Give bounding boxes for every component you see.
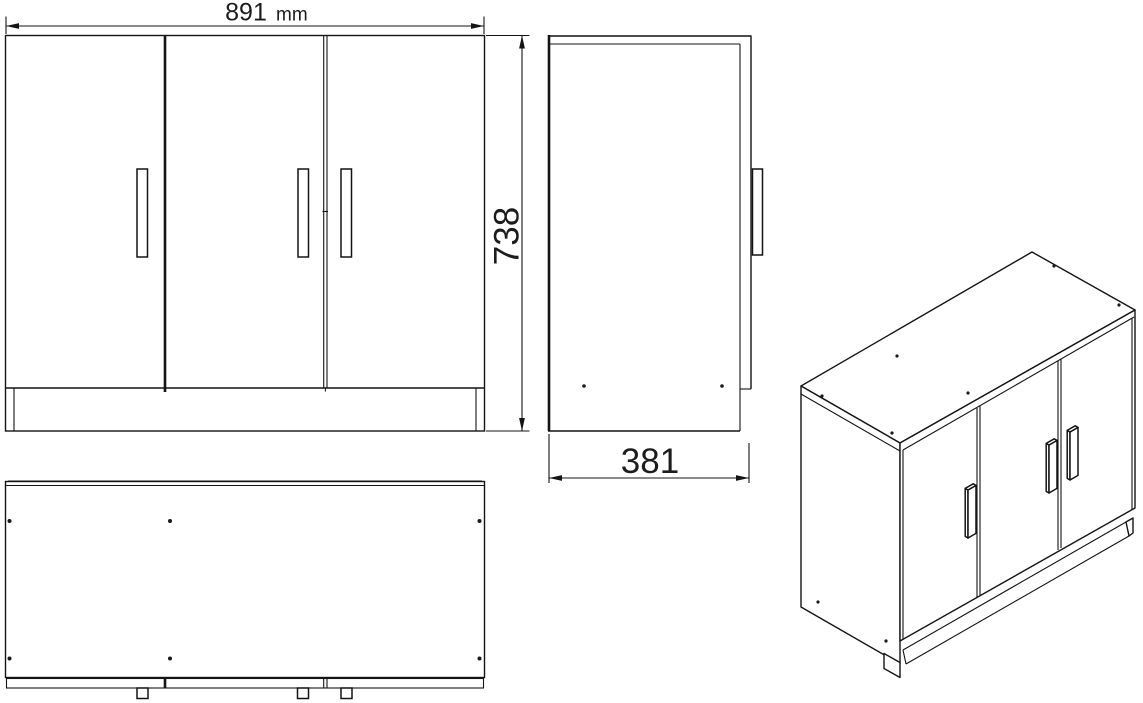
iso-top-screw-dot-2 [895, 354, 898, 357]
side-view [548, 35, 763, 431]
front-cabinet-outline [6, 36, 485, 432]
dim-width-arrow-right [471, 23, 484, 29]
top-door3-handle [341, 688, 352, 699]
dimension-depth: 381 [549, 434, 749, 483]
top-screw-dot-1 [8, 519, 12, 523]
iso-side-screw-dot-2 [884, 639, 887, 642]
iso-top-screw-dot-5 [966, 391, 969, 394]
front-door2-handle [298, 169, 309, 257]
iso-door2-handle [1046, 439, 1057, 493]
iso-plinth-right-cap [1126, 518, 1133, 536]
iso-top-screw-dot-3 [1052, 264, 1055, 267]
top-door2-handle [298, 688, 309, 699]
dim-width-unit: mm [276, 5, 308, 26]
dim-width-label: 891 [225, 0, 267, 27]
top-screw-dot-6 [478, 657, 482, 661]
dim-depth-arrow-right [736, 475, 749, 481]
isometric-view [801, 252, 1135, 678]
top-screw-dot-4 [8, 657, 12, 661]
top-screw-dot-5 [168, 657, 172, 661]
front-view [6, 36, 485, 432]
dim-width-arrow-left [6, 23, 19, 29]
top-body-outline [6, 482, 485, 678]
iso-door1-handle-front [968, 485, 976, 538]
iso-top-screw-dot-6 [1117, 303, 1120, 306]
dim-depth-label: 381 [621, 442, 679, 481]
side-handle-profile [753, 169, 763, 255]
side-screw-dot-2 [720, 384, 724, 388]
technical-drawing-canvas: 891 mm 738 381 [0, 0, 1143, 703]
iso-door2-handle-front [1049, 440, 1057, 493]
iso-door1-handle [965, 484, 976, 538]
iso-plinth-left-edge [903, 650, 906, 664]
iso-top-screw-dot-4 [890, 431, 893, 434]
top-doors-strip [7, 679, 484, 689]
iso-side-screw-dot-1 [816, 600, 819, 603]
dim-depth-arrow-left [549, 475, 562, 481]
dimension-width: 891 mm [6, 0, 484, 34]
iso-top-screw-dot-1 [820, 394, 823, 397]
dimension-height: 738 [486, 36, 530, 432]
iso-door3-handle-front [1070, 427, 1078, 480]
dim-height-arrow-bottom [519, 418, 525, 431]
side-screw-dot-1 [582, 384, 586, 388]
top-screw-dot-3 [478, 519, 482, 523]
front-door1-handle [137, 169, 148, 257]
technical-drawing: 891 mm 738 381 [0, 0, 1143, 703]
top-screw-dot-2 [168, 519, 172, 523]
front-door3-handle [341, 169, 352, 257]
top-door1-handle [137, 688, 148, 699]
dim-height-arrow-top [519, 36, 525, 49]
top-view [6, 481, 485, 699]
dim-height-label: 738 [488, 207, 527, 265]
iso-door3-handle [1067, 426, 1078, 480]
